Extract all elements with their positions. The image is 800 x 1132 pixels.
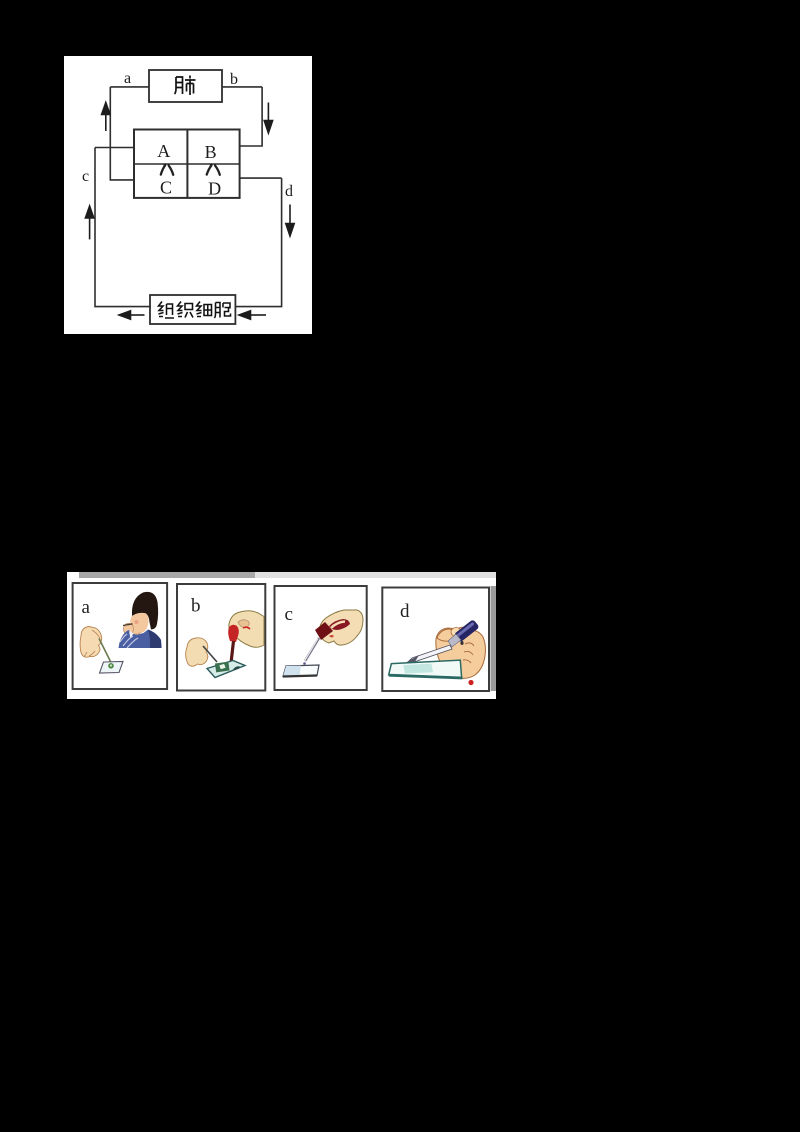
svg-text:C: C	[160, 178, 172, 198]
svg-text:c: c	[82, 168, 89, 185]
svg-text:D: D	[208, 179, 221, 199]
svg-text:d: d	[400, 601, 410, 622]
svg-text:A: A	[157, 141, 170, 161]
svg-text:B: B	[205, 142, 217, 162]
svg-text:b: b	[230, 71, 238, 88]
svg-text:c: c	[285, 604, 293, 625]
svg-text:a: a	[82, 597, 91, 618]
svg-text:d: d	[285, 183, 293, 200]
svg-text:b: b	[191, 596, 201, 617]
svg-text:a: a	[124, 70, 131, 87]
